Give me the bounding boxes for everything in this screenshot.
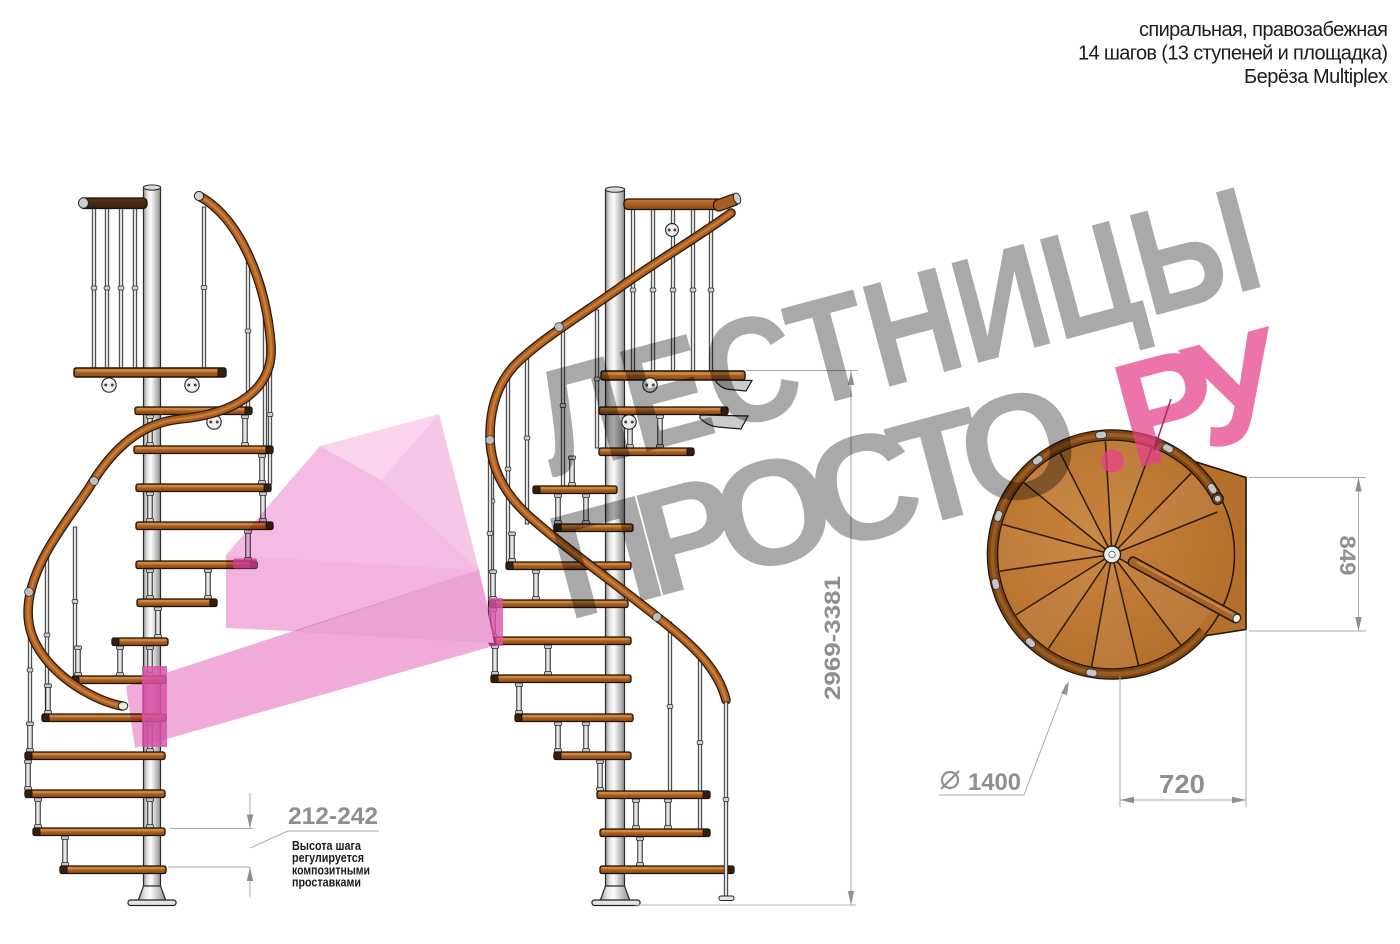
- svg-text:2969-3381: 2969-3381: [820, 576, 845, 700]
- svg-text:спиральная, правозабежная: спиральная, правозабежная: [1139, 19, 1388, 41]
- svg-text:720: 720: [1159, 769, 1205, 799]
- svg-text:849: 849: [1335, 536, 1360, 576]
- svg-text:14 шагов (13 ступеней и площад: 14 шагов (13 ступеней и площадка): [1078, 43, 1388, 65]
- svg-text:1400: 1400: [968, 769, 1021, 796]
- svg-text:проставками: проставками: [292, 875, 361, 890]
- svg-text:212-242: 212-242: [288, 803, 378, 830]
- svg-text:Берёза Multiplex: Берёза Multiplex: [1244, 66, 1388, 88]
